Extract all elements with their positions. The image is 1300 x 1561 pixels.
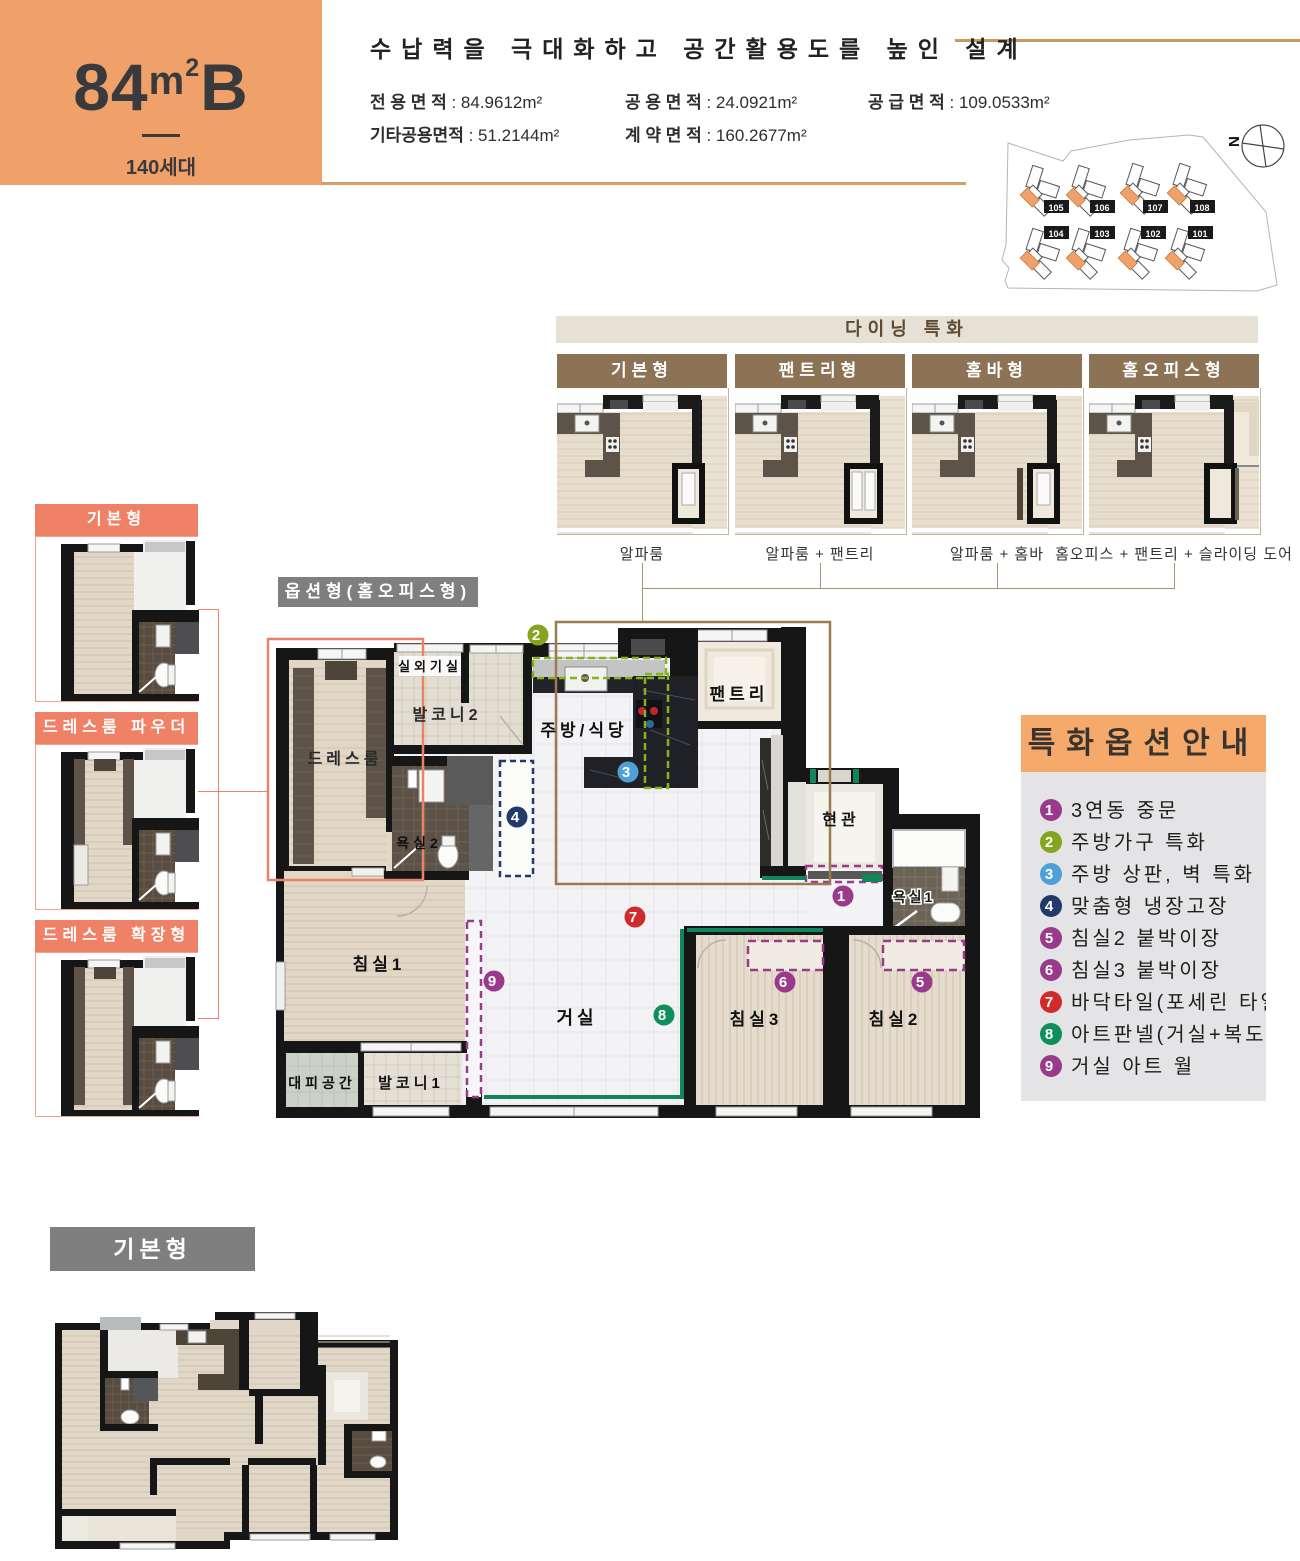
svg-text:104: 104: [1048, 229, 1063, 239]
svg-text:침실2 붙박이장: 침실2 붙박이장: [1071, 927, 1222, 950]
svg-text:5: 5: [916, 974, 928, 991]
svg-text:8: 8: [1045, 1026, 1057, 1043]
svg-text:현관: 현관: [822, 810, 859, 829]
svg-text:발코니1: 발코니1: [378, 1075, 444, 1092]
svg-text:6: 6: [1045, 962, 1057, 979]
svg-text:실외기실: 실외기실: [398, 659, 462, 674]
svg-text:2: 2: [532, 627, 544, 644]
svg-text:침실3 붙박이장: 침실3 붙박이장: [1071, 959, 1222, 982]
svg-text:102: 102: [1145, 229, 1160, 239]
svg-text:108: 108: [1194, 203, 1209, 213]
svg-text:2: 2: [1045, 834, 1057, 851]
svg-text:N: N: [1226, 136, 1243, 147]
svg-text:주방가구 특화: 주방가구 특화: [1071, 831, 1208, 854]
svg-text:4: 4: [1045, 898, 1057, 915]
svg-text:107: 107: [1147, 203, 1162, 213]
svg-text:드레스룸: 드레스룸: [308, 750, 383, 768]
svg-text:4: 4: [511, 809, 523, 826]
svg-text:욕실2: 욕실2: [396, 835, 442, 851]
svg-text:8: 8: [658, 1007, 670, 1024]
svg-text:3연동 중문: 3연동 중문: [1071, 799, 1179, 822]
svg-text:침실2: 침실2: [869, 1009, 922, 1029]
svg-text:106: 106: [1094, 203, 1109, 213]
svg-text:103: 103: [1094, 229, 1109, 239]
svg-text:침실1: 침실1: [353, 954, 406, 974]
svg-text:바닥타일(포세린 타일): 바닥타일(포세린 타일): [1071, 991, 1266, 1014]
svg-text:팬트리: 팬트리: [710, 685, 769, 704]
svg-text:7: 7: [629, 909, 641, 926]
svg-text:9: 9: [488, 973, 500, 990]
svg-text:주방/식당: 주방/식당: [540, 721, 627, 740]
svg-text:7: 7: [1045, 994, 1057, 1011]
svg-text:주방 상판, 벽 특화: 주방 상판, 벽 특화: [1071, 863, 1255, 886]
svg-text:욕실1: 욕실1: [893, 889, 936, 905]
svg-text:3: 3: [1045, 866, 1057, 883]
svg-text:아트판넬(거실+복도): 아트판넬(거실+복도): [1071, 1023, 1266, 1046]
svg-text:발코니2: 발코니2: [412, 706, 481, 724]
svg-text:1: 1: [1045, 802, 1057, 819]
svg-text:1: 1: [837, 888, 849, 905]
svg-text:105: 105: [1048, 203, 1063, 213]
svg-text:침실3: 침실3: [730, 1009, 783, 1029]
svg-text:대피공간: 대피공간: [288, 1075, 356, 1091]
svg-text:거실 아트 월: 거실 아트 월: [1071, 1055, 1195, 1078]
svg-text:맞춤형 냉장고장: 맞춤형 냉장고장: [1071, 895, 1229, 918]
svg-text:6: 6: [779, 974, 791, 991]
svg-text:9: 9: [1045, 1058, 1057, 1075]
svg-text:3: 3: [622, 764, 634, 781]
svg-text:101: 101: [1192, 229, 1207, 239]
svg-text:거실: 거실: [556, 1008, 597, 1028]
svg-text:5: 5: [1045, 930, 1057, 947]
